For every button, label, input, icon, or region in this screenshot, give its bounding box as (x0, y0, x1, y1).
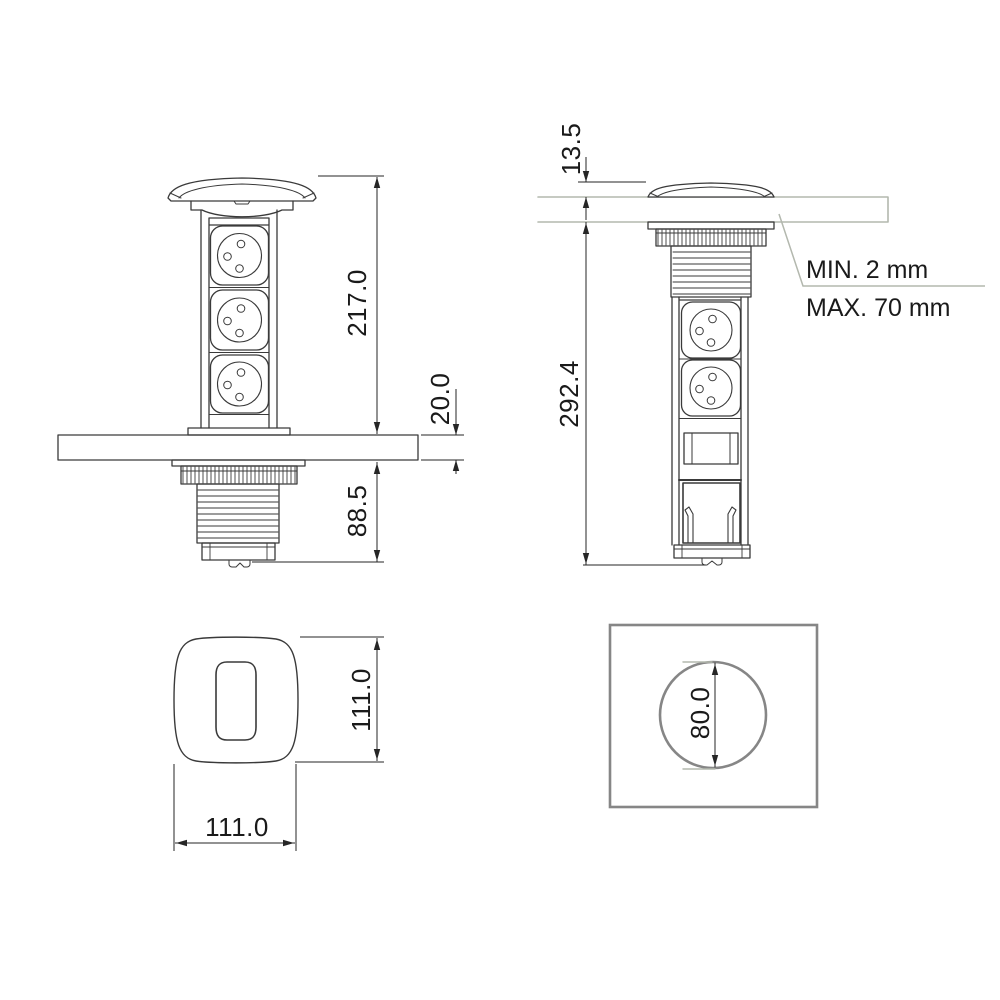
dim-111-vertical: 111.0 (295, 637, 384, 762)
counter-thickness-note: MIN. 2 mm MAX. 70 mm (779, 214, 985, 322)
front-socket-module-1 (211, 226, 269, 285)
side-blank-module (679, 433, 741, 480)
dim-217: 217.0 (318, 176, 384, 434)
front-countertop (58, 435, 418, 460)
dim-label-counter-thickness: 20.0 (425, 373, 455, 426)
front-lid (168, 178, 316, 204)
dim-13-5: 13.5 (556, 123, 646, 220)
side-countertop (538, 197, 888, 222)
cutout-dim-80: 80.0 (683, 662, 718, 769)
note-max-thickness: MAX. 70 mm (806, 294, 950, 322)
drawing-svg: 217.0 20.0 88.5 (0, 0, 1000, 1000)
dim-label-under-counter-depth: 88.5 (342, 485, 372, 538)
dim-label-lid-width: 111.0 (205, 812, 269, 842)
dim-label-lid-depth: 111.0 (346, 668, 376, 732)
side-view-retracted (538, 183, 888, 565)
side-cable-clip-box (674, 483, 750, 565)
front-collar (191, 201, 293, 217)
side-socket-module-1 (682, 302, 741, 358)
dim-111-horizontal: 111.0 (174, 764, 296, 851)
front-socket-module-2 (211, 290, 269, 350)
note-min-thickness: MIN. 2 mm (806, 256, 928, 284)
side-socket-module-2 (682, 360, 741, 416)
front-mounting (172, 460, 305, 567)
dim-label-hole-diameter: 80.0 (685, 687, 715, 740)
technical-drawing-pop-up-socket: 217.0 20.0 88.5 (0, 0, 1000, 1000)
dim-20: 20.0 (421, 373, 464, 474)
top-view-dimensions: 111.0 111.0 (174, 637, 384, 851)
dim-label-overall-height: 292.4 (554, 360, 584, 428)
cutout-view: 80.0 (610, 625, 817, 807)
top-view-lid (174, 637, 298, 763)
lid-outline (174, 637, 298, 763)
dim-label-pop-up-height: 217.0 (342, 269, 372, 337)
front-socket-module-3 (211, 355, 269, 413)
side-dimensions: 13.5 292.4 MIN. 2 mm MAX. 70 mm (554, 123, 985, 565)
lid-handle-slot (216, 662, 256, 740)
side-lid (648, 183, 774, 197)
dim-label-lid-height: 13.5 (556, 123, 586, 176)
side-mounting (648, 222, 774, 297)
front-dimensions: 217.0 20.0 88.5 (252, 176, 464, 562)
